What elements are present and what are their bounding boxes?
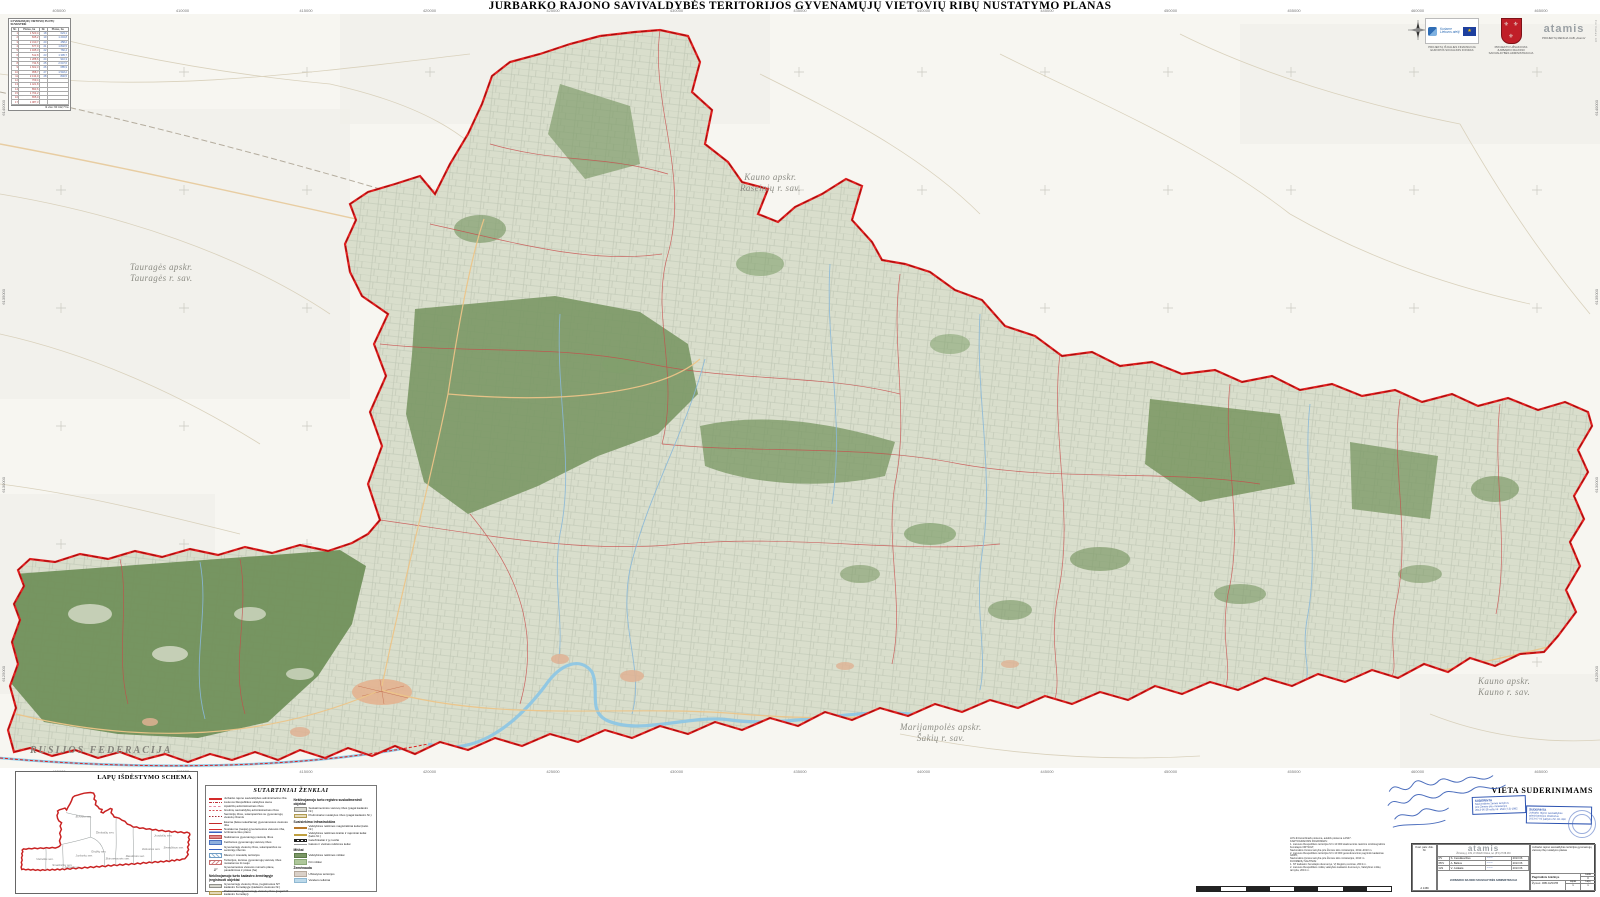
scale-bar — [1196, 886, 1392, 892]
legend-swatch — [209, 860, 222, 865]
atamis-logo: atamis — [1544, 23, 1585, 35]
legend-swatch — [294, 827, 307, 829]
table-row: 171 087,3 — [11, 100, 68, 104]
tick-label: 415000 — [291, 769, 321, 774]
legend-item: Naikinamos gyvenamųjų vietovių ribos — [209, 835, 289, 840]
map-canvas: Kauno apskr.Raseinių r. sav. Tauragės ap… — [0, 14, 1600, 769]
bottom-strip: 4050004100004150004200004250004300004350… — [0, 768, 1600, 895]
note-line: 2. Lietuvos Respublikos miškų valstybės … — [1290, 867, 1390, 873]
tick-label: 440000 — [909, 769, 939, 774]
legend-label: Užstatytos teritorijos — [309, 873, 335, 876]
sheet-format-note: Formatas A0 — [1594, 20, 1598, 43]
legend-swatch — [294, 834, 307, 836]
cell: 1 087,3 — [19, 100, 40, 104]
legend-box: SUTARTINIAI ŽENKLAI Jurbarko rajono savi… — [205, 785, 377, 892]
titleblock-lapas: Lapas1 — [1565, 881, 1580, 890]
schema-area-label: Eržvilko sen. — [76, 814, 92, 818]
legend-title: SUTARTINIAI ŽENKLAI — [209, 788, 373, 794]
legend-item: Esama (lieka nekeičiama) gyvenamosios vi… — [209, 821, 289, 827]
legend-label: Teritorijos, kuriose gyvenamųjų vietovių… — [224, 859, 289, 865]
legend-swatch — [209, 835, 222, 840]
legend-swatch — [209, 823, 222, 825]
logo-strip: Kuriame Lietuvos ateitį ★ PROJEKTĄ IŠ DA… — [1424, 18, 1586, 55]
legend-swatch — [294, 844, 307, 845]
legend-subheader: Nekilnojamojo turto kadastro žemėlapyje … — [209, 874, 289, 882]
legend-label: Naikinamos gyvenamųjų vietovių ribos — [224, 836, 273, 839]
legend-label: Nustatoma (nauja) gyvenamosios vietovės … — [224, 828, 289, 834]
legend-item: Gyvenamųjų vietovių ribos, sutampančios … — [209, 846, 289, 852]
titleblock-client: JURBARKO RAJONO SAVIVALDYBĖS ADMINISTRAC… — [1438, 870, 1529, 890]
legend-swatch — [294, 859, 307, 864]
coat-of-arms-caption: PROJEKTO UŽSAKOVAS JURBARKO RAJONO SAVIV… — [1487, 46, 1535, 56]
corner-table-title: GYVENAMŲJŲ VIETOVIŲ PLOTŲ SUVESTINĖ — [11, 20, 69, 26]
schema-area-label: Viešvilės sen. — [36, 857, 54, 861]
legend-label: Kiti miškai — [309, 861, 322, 864]
tick-label: 425000 — [538, 769, 568, 774]
legend-label: Miestų ir miestelių teritorijos — [224, 854, 260, 857]
tick-label: 445000 — [1032, 769, 1062, 774]
sheet-schema-map: Viešvilės sen.Smalininkų sen.Jurbarko m.… — [16, 781, 195, 881]
tick-label: 465000 — [1526, 769, 1556, 774]
legend-swatch — [294, 853, 307, 858]
source-notes: LKS-94 koordinačių sistema, aukščių sist… — [1290, 838, 1390, 873]
stamp-line: 2013-06-28 raštu Nr. 1SD-(7.3)-1892 — [1475, 807, 1523, 812]
legend-item: Kiti miškai — [294, 859, 374, 864]
schema-area-label: Seredžiaus sen. — [164, 845, 185, 849]
map-sheet: JURBARKO RAJONO SAVIVALDYBĖS TERITORIJOS… — [0, 0, 1600, 895]
grid-ruler-bottom: 4050004100004150004200004250004300004350… — [0, 769, 1600, 774]
titleblock-company: atamis Žirmūnų g. 139, LT-09120 Vilnius,… — [1437, 844, 1530, 891]
eu-flag-icon: ★ — [1463, 27, 1476, 36]
tick-label: 455000 — [1279, 769, 1309, 774]
corner-table: GYVENAMŲJŲ VIETOVIŲ PLOTŲ SUVESTINĖ Nr. … — [8, 18, 71, 111]
titleblock-laida: Laida0 — [1580, 874, 1595, 880]
titleblock-certificate: Kval. patv. dok. Nr. A 1469 — [1412, 844, 1437, 891]
legend-swatch: 1² — [209, 867, 222, 872]
legend-section-landuse: Žemėnauda — [294, 866, 374, 870]
legend-label: Esama (lieka nekeičiama) gyvenamosios vi… — [224, 821, 289, 827]
titleblock-project: Jurbarko rajono savivaldybės teritorijos… — [1530, 844, 1596, 891]
tick-label: 435000 — [785, 769, 815, 774]
tick-label: 430000 — [662, 769, 692, 774]
legend-item: Vandens telkiniai — [294, 878, 374, 883]
cell: 17 — [11, 100, 19, 104]
legend-swatch — [209, 798, 222, 800]
legend-swatch — [294, 807, 307, 811]
legend-label: Gyvenamosios vietovės numeris plane, pav… — [224, 866, 289, 872]
eu-logo-caption: PROJEKTĄ IŠ DALIES FINANSUOJA EUROPOS SO… — [1424, 46, 1480, 52]
legend-label: Valstybinės reikšmės magistraliniai keli… — [309, 825, 374, 831]
region-label-kaunas: Kauno apskr.Kauno r. sav. — [1478, 676, 1530, 697]
legend-item: Gyvenamųjų vietovių ribos, įregistruotos… — [209, 883, 289, 889]
titleblock-lapu: Lapų1 — [1580, 881, 1595, 890]
title-bar: JURBARKO RAJONO SAVIVALDYBĖS TERITORIJOS… — [0, 0, 1600, 15]
sheet-schema-box: LAPŲ IŠDĖSTYMO SCHEMA Viešvilės sen.Smal… — [15, 771, 198, 894]
legend-label: Valstybinės reikšmės miškai — [309, 854, 345, 857]
legend-item: Valstybinės reikšmės magistraliniai keli… — [294, 825, 374, 831]
legend-label: Preliminariai nustatytos ribos (pagal ka… — [309, 814, 372, 817]
legend-label: Gatvės ir vietinės reikšmės keliai — [309, 843, 351, 846]
titleblock-atamis-logo: atamis — [1438, 845, 1529, 853]
schema-area-label: Jurbarkų sen. — [76, 853, 94, 857]
titleblock: Kval. patv. dok. Nr. A 1469 atamis Žirmū… — [1411, 843, 1595, 892]
legend-swatch — [209, 816, 222, 817]
legend-swatch — [209, 829, 222, 833]
legend-item: Suskaitmenintos vietovių ribos (pagal ka… — [294, 807, 374, 813]
eu-logo-text: Kuriame Lietuvos ateitį — [1440, 28, 1460, 35]
legend-item: Gatvės ir vietinės reikšmės keliai — [294, 843, 374, 846]
atamis-caption: PROJEKTĄ RENGIA UAB „Atamis“ — [1542, 37, 1586, 40]
legend-item: Seniūnijų ribos, sutampančios su gyvenam… — [209, 813, 289, 819]
atamis-logo-block: atamis PROJEKTĄ RENGIA UAB „Atamis“ — [1542, 18, 1586, 40]
corner-table-grid: Nr. Plotas, ha Nr. Plotas, ha 11 523,418… — [11, 27, 69, 105]
map-svg — [0, 14, 1600, 768]
legend-swatch — [209, 849, 222, 850]
legend-label: Suskaitmenintos vietovių ribos (pagal ka… — [309, 807, 374, 813]
region-label-russia: RUSIJOS FEDERACIJA — [30, 746, 172, 757]
legend-swatch — [209, 884, 222, 888]
legend-item: Preliminarios gyvenamųjų vietovių ribos … — [209, 890, 289, 896]
sheet-schema-title: LAPŲ IŠDĖSTYMO SCHEMA — [16, 772, 197, 781]
cell — [47, 100, 68, 104]
legend-swatch — [294, 814, 307, 818]
region-label-raseiniai: Kauno apskr.Raseinių r. sav. — [740, 172, 801, 193]
legend-label: Valstybinės reikšmės krašto ir rajoninia… — [309, 832, 374, 838]
legend-swatch — [209, 806, 222, 807]
cell — [39, 100, 47, 104]
legend-label: Seniūnijų ribos, sutampančios su gyvenam… — [224, 813, 289, 819]
coat-of-arms: ⚜⚜⚜ — [1501, 18, 1522, 44]
schema-area-label: Jurbarko m. — [64, 865, 79, 869]
legend-label: Gyvenamųjų vietovių ribos, įregistruotos… — [224, 883, 289, 889]
schema-area-label: Veliuonos sen. — [142, 847, 161, 851]
legend-label: Preliminarios gyvenamųjų vietovių ribos … — [224, 890, 289, 896]
eu-brand-icon — [1428, 27, 1437, 36]
page-title: JURBARKO RAJONO SAVIVALDYBĖS TERITORIJOS… — [0, 0, 1600, 13]
approval-stamp-1: SUDERINTA Nacionalinės žemės tarnybos pr… — [1472, 795, 1527, 814]
legend-item: 1²Gyvenamosios vietovės numeris plane, p… — [209, 866, 289, 872]
eu-logo: Kuriame Lietuvos ateitį ★ — [1425, 18, 1479, 44]
legend-right-column: Nekilnojamojo turto registro suskaitmeni… — [294, 796, 374, 897]
legend-subheader: Nekilnojamojo turto registro suskaitmeni… — [294, 798, 374, 806]
legend-swatch — [294, 871, 307, 876]
legend-left-column: Jurbarko rajono savivaldybės administrac… — [209, 796, 289, 897]
legend-swatch — [209, 810, 222, 811]
coat-of-arms-block: ⚜⚜⚜ PROJEKTO UŽSAKOVAS JURBARKO RAJONO S… — [1487, 18, 1535, 55]
legend-section-forests: Miškai — [294, 848, 374, 852]
titleblock-drawing-name: Pagrindinis brėžinys — [1531, 874, 1580, 880]
eu-logo-block: Kuriame Lietuvos ateitį ★ PROJEKTĄ IŠ DA… — [1424, 18, 1480, 52]
schema-area-label: Raudonės sen. — [126, 854, 145, 858]
legend-label: Keičiamos gyvenamųjų vietovių ribos — [224, 841, 271, 844]
legend-label: Gyvenamųjų vietovių ribos, sutampančios … — [224, 846, 289, 852]
legend-label: Vandens telkiniai — [309, 879, 331, 882]
legend-swatch — [209, 840, 222, 845]
titleblock-code: Žymuo: JRB-GVR-PB — [1531, 881, 1565, 890]
legend-item: Nustatoma (nauja) gyvenamosios vietovės … — [209, 828, 289, 834]
legend-item: Užstatytos teritorijos — [294, 871, 374, 876]
tick-label: 450000 — [1156, 769, 1186, 774]
legend-swatch — [294, 878, 307, 883]
legend-swatch — [209, 853, 222, 858]
legend-swatch — [294, 839, 307, 841]
region-label-marijampole: Marijampolės apskr.Šakių r. sav. — [900, 722, 982, 743]
legend-item: Valstybinės reikšmės miškai — [294, 853, 374, 858]
region-label-taurage: Tauragės apskr.Tauragės r. sav. — [130, 262, 193, 283]
legend-item: Preliminariai nustatytos ribos (pagal ka… — [294, 814, 374, 818]
round-stamp — [1568, 810, 1596, 838]
tick-label: 420000 — [415, 769, 445, 774]
schema-area-label: Girdžių sen. — [91, 850, 106, 854]
legend-item: Teritorijos, kuriose gyvenamųjų vietovių… — [209, 859, 289, 865]
legend-item: Valstybinės reikšmės krašto ir rajoninia… — [294, 832, 374, 838]
titleblock-project-name: Jurbarko rajono savivaldybės teritorijos… — [1531, 845, 1595, 874]
legend-swatch — [209, 802, 222, 803]
corner-table-footer: Iš viso: 60 412,7 ha — [11, 105, 69, 109]
schema-area-label: Juodaičių sen. — [154, 834, 172, 838]
